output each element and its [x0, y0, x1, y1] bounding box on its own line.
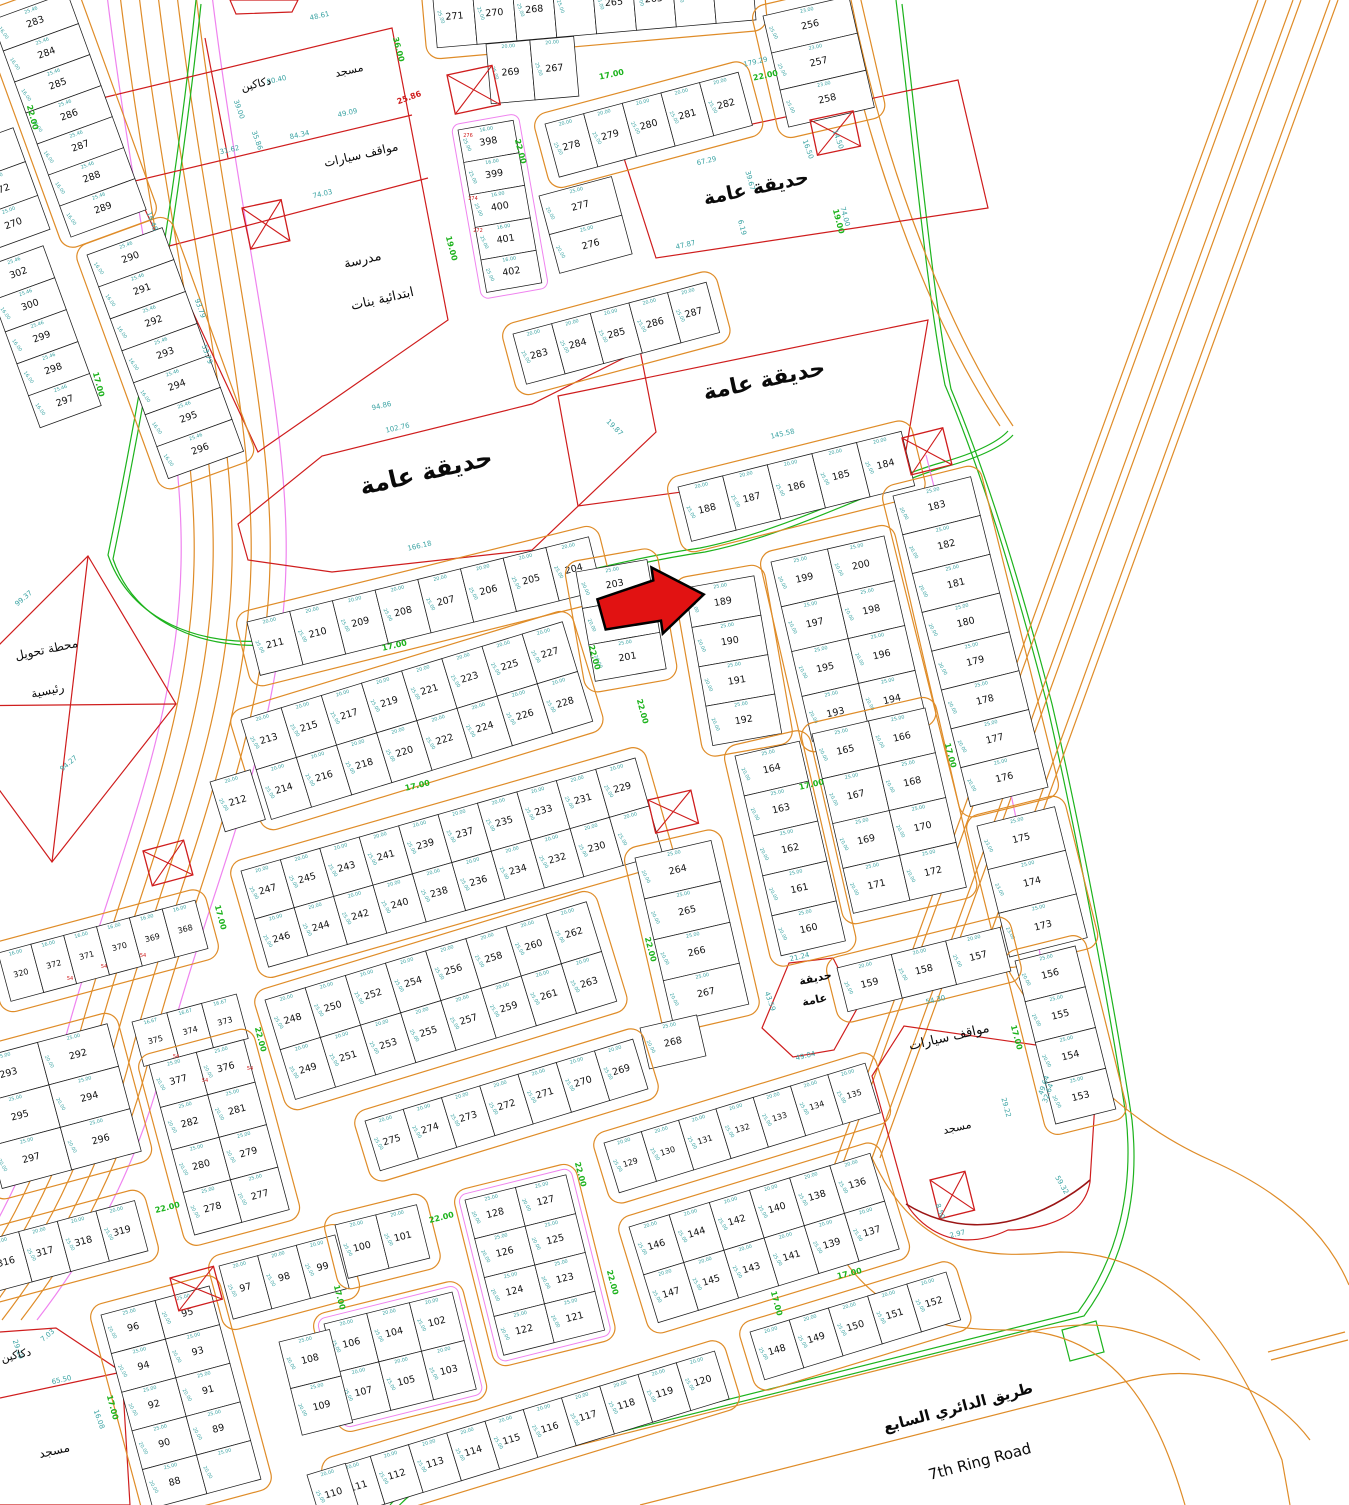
red-mark: 54 — [101, 964, 107, 970]
red-mark: 54 — [67, 976, 73, 982]
plot-number: 271 — [445, 10, 464, 23]
red-mark: 276 — [463, 133, 473, 139]
dim-label: 20.00 — [545, 39, 559, 46]
plot-cell — [671, 0, 716, 27]
dim-label: 20.00 — [501, 43, 515, 50]
cad-map-canvas: 27120.0025.0027020.0025.0026820.0025.002… — [0, 0, 1349, 1505]
plot-number: 265 — [604, 0, 623, 9]
red-mark: 54 — [140, 953, 146, 959]
plot-number: 269 — [501, 66, 520, 79]
red-mark: 54 — [173, 1054, 179, 1060]
red-mark: 272 — [473, 228, 483, 234]
plot-cell — [711, 0, 756, 23]
red-mark: 274 — [468, 196, 478, 202]
plot-block: 26920.0025.0026720.0025.00 — [486, 36, 579, 103]
plot-number: 270 — [485, 7, 504, 20]
plot-number: 267 — [545, 62, 564, 75]
red-mark: 54 — [247, 1066, 253, 1072]
cad-map: 27120.0025.0027020.0025.0026820.0025.002… — [0, 0, 1349, 1505]
plot-number: 268 — [525, 3, 544, 16]
plot-cell — [432, 0, 477, 48]
red-mark: 54 — [202, 1078, 208, 1084]
